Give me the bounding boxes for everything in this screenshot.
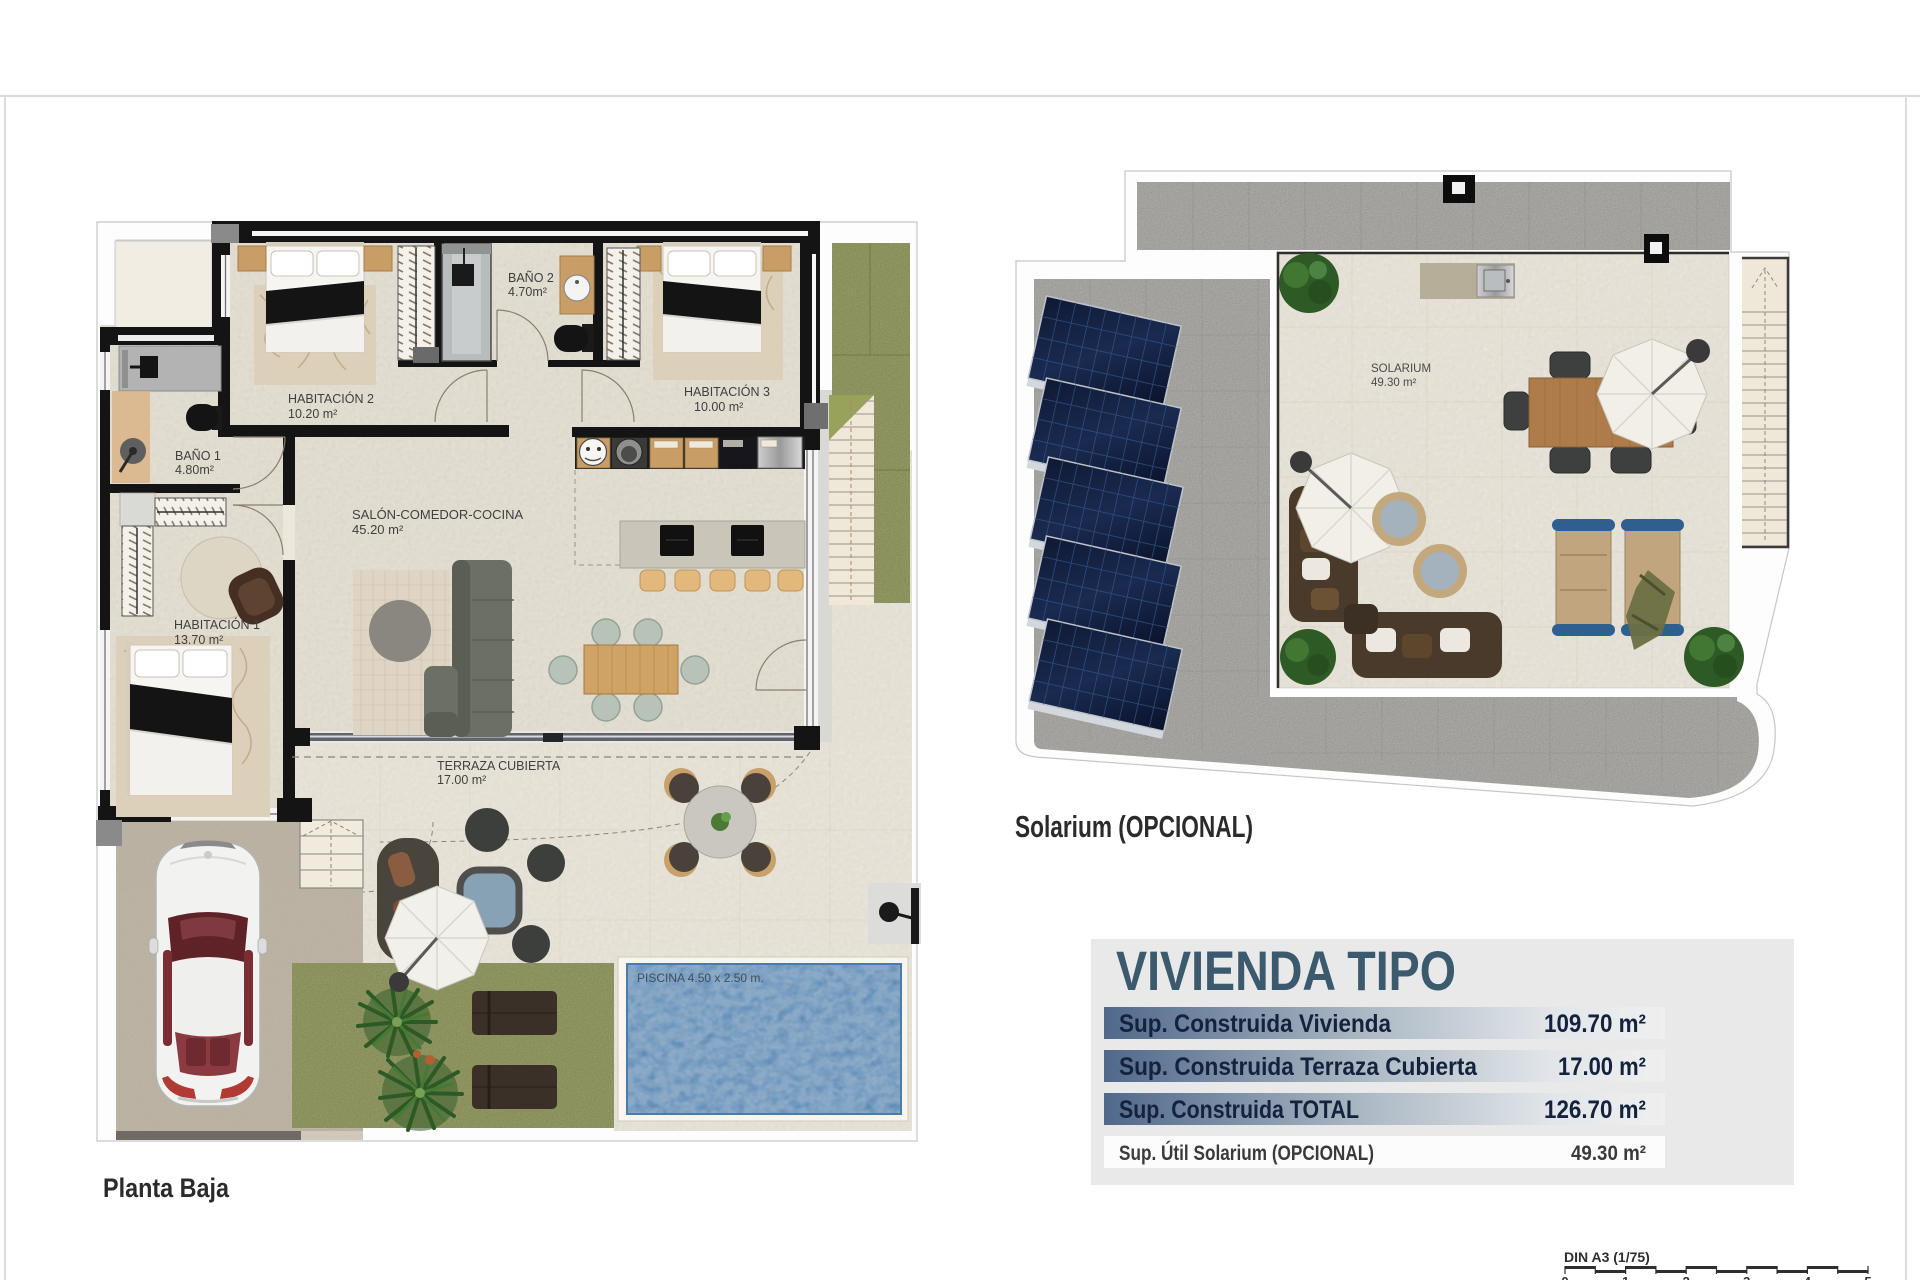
svg-text:10.20 m²: 10.20 m²: [288, 407, 337, 421]
svg-text:1: 1: [1622, 1274, 1629, 1280]
svg-text:SALÓN-COMEDOR-COCINA: SALÓN-COMEDOR-COCINA: [352, 507, 524, 522]
svg-text:4: 4: [1804, 1274, 1812, 1280]
svg-text:0: 0: [1561, 1274, 1568, 1280]
svg-text:126.70 m²: 126.70 m²: [1544, 1096, 1646, 1124]
svg-text:SOLARIUM: SOLARIUM: [1371, 363, 1431, 375]
svg-text:13.70 m²: 13.70 m²: [174, 633, 223, 647]
svg-text:Solarium (OPCIONAL): Solarium (OPCIONAL): [1015, 809, 1253, 844]
svg-text:Sup. Construida Vivienda: Sup. Construida Vivienda: [1119, 1010, 1392, 1038]
svg-text:3: 3: [1743, 1274, 1750, 1280]
svg-text:PISCINA 4.50 x 2.50 m.: PISCINA 4.50 x 2.50 m.: [637, 971, 764, 985]
svg-text:TERRAZA CUBIERTA: TERRAZA CUBIERTA: [437, 759, 561, 773]
svg-text:4.80m²: 4.80m²: [175, 463, 214, 477]
svg-text:HABITACIÓN 3: HABITACIÓN 3: [684, 384, 770, 399]
svg-text:BAÑO 1: BAÑO 1: [175, 449, 221, 463]
svg-text:2: 2: [1683, 1274, 1690, 1280]
svg-text:49.30 m²: 49.30 m²: [1371, 377, 1417, 389]
svg-text:109.70 m²: 109.70 m²: [1544, 1010, 1646, 1038]
svg-text:VIVIENDA TIPO: VIVIENDA TIPO: [1116, 939, 1456, 1002]
svg-text:17.00 m²: 17.00 m²: [437, 773, 486, 787]
svg-text:HABITACIÓN 2: HABITACIÓN 2: [288, 391, 374, 406]
svg-text:Planta Baja: Planta Baja: [103, 1173, 230, 1203]
svg-text:Sup. Construida Terraza Cubier: Sup. Construida Terraza Cubierta: [1119, 1053, 1478, 1081]
svg-text:HABITACIÓN 1: HABITACIÓN 1: [174, 617, 260, 632]
svg-text:10.00 m²: 10.00 m²: [694, 400, 743, 414]
svg-text:DIN A3 (1/75): DIN A3 (1/75): [1564, 1249, 1650, 1265]
svg-text:Sup. Útil Solarium (OPCIONAL): Sup. Útil Solarium (OPCIONAL): [1119, 1141, 1374, 1165]
svg-text:4.70m²: 4.70m²: [508, 285, 547, 299]
svg-text:5: 5: [1864, 1274, 1871, 1280]
svg-text:49.30 m²: 49.30 m²: [1571, 1142, 1646, 1165]
svg-text:45.20 m²: 45.20 m²: [352, 522, 404, 537]
svg-text:17.00 m²: 17.00 m²: [1558, 1053, 1646, 1081]
svg-text:BAÑO 2: BAÑO 2: [508, 271, 554, 285]
svg-text:Sup. Construida TOTAL: Sup. Construida TOTAL: [1119, 1096, 1359, 1124]
